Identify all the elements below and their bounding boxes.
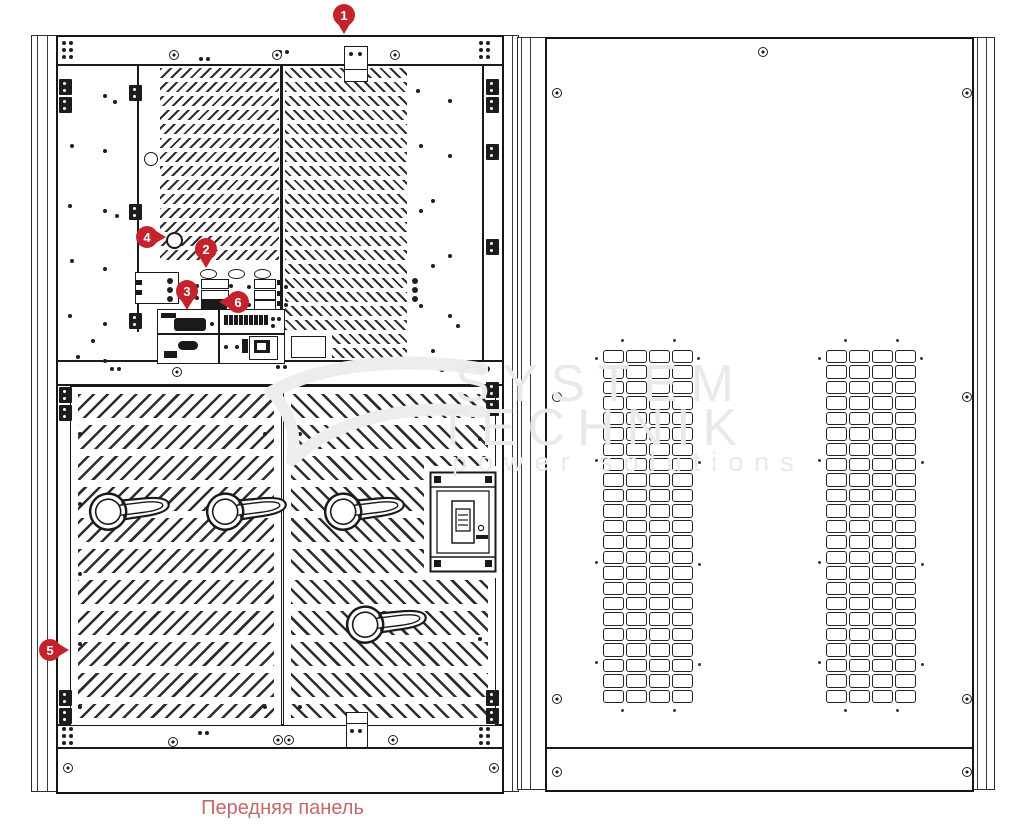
vent-slot (872, 443, 893, 456)
vent-slot (826, 350, 847, 363)
connector-pad (277, 301, 282, 306)
grille-mark (844, 709, 847, 712)
rivet-dot (479, 734, 483, 738)
vent-slot (872, 551, 893, 564)
rivet-dot (479, 741, 483, 745)
latch-line (345, 69, 367, 70)
connector-oval (200, 269, 217, 279)
vent-slot (872, 504, 893, 517)
upper-vent-grille-right (285, 68, 407, 360)
vent-slot (895, 690, 916, 703)
hinge-icon (59, 708, 72, 724)
rivet-dot (78, 642, 82, 646)
vent-slot (826, 690, 847, 703)
bolt-dot (412, 278, 418, 284)
rivet-dot (247, 285, 251, 289)
rivet-dot (91, 339, 95, 343)
hinge-icon (59, 79, 72, 95)
grille-mark (698, 663, 701, 666)
vent-slot (895, 504, 916, 517)
vent-slot (872, 582, 893, 595)
connector-block (242, 339, 248, 353)
breaker-cutout (424, 466, 502, 578)
vent-slot (849, 659, 870, 672)
vent-slot (872, 612, 893, 625)
rivet-dot (76, 355, 80, 359)
vent-slot (649, 628, 670, 641)
rivet-dot (69, 734, 73, 738)
vent-slot (826, 443, 847, 456)
lcd-screen (257, 343, 266, 350)
vent-slot (872, 350, 893, 363)
vent-slot (826, 674, 847, 687)
vent-slot (649, 690, 670, 703)
grille-mark (595, 661, 598, 664)
vent-slot (872, 427, 893, 440)
vent-slot (895, 643, 916, 656)
frame-line (58, 747, 502, 749)
hinge-icon (59, 405, 72, 421)
rivet-dot (62, 48, 66, 52)
vent-slot (672, 674, 693, 687)
vent-slot (649, 612, 670, 625)
vent-slot (895, 489, 916, 502)
vent-slot (849, 628, 870, 641)
vent-slot (895, 412, 916, 425)
vent-slot (872, 643, 893, 656)
rivet-dot (285, 50, 289, 54)
grille-mark (921, 461, 924, 464)
rivet-dot (103, 209, 107, 213)
rivet-dot (69, 741, 73, 745)
grille-mark (818, 357, 821, 360)
rail-line (986, 38, 987, 789)
rivet-dot (448, 99, 452, 103)
rivet-dot (68, 314, 72, 318)
rivet-dot (419, 144, 423, 148)
rivet-dot (103, 149, 107, 153)
vent-slot (603, 674, 624, 687)
rail-line (977, 38, 978, 789)
screw-icon (552, 694, 562, 704)
screw-icon (168, 737, 178, 747)
vent-slot (626, 566, 647, 579)
vent-slot (895, 396, 916, 409)
rivet-dot (448, 314, 452, 318)
rivet-cluster (479, 41, 490, 59)
vent-slot (872, 473, 893, 486)
rivet-dot (199, 57, 203, 61)
screw-icon (388, 735, 398, 745)
vent-slot (626, 659, 647, 672)
rivet-dot (206, 57, 210, 61)
vent-slot (603, 597, 624, 610)
connector-pad (277, 291, 282, 296)
vent-slot (603, 628, 624, 641)
vent-slot (626, 535, 647, 548)
bolt-dot (167, 278, 173, 284)
screw-icon (552, 767, 562, 777)
vent-slot (895, 427, 916, 440)
grille-mark (921, 563, 924, 566)
vent-slot (872, 365, 893, 378)
bolt-dot (167, 287, 173, 293)
vent-slot (649, 582, 670, 595)
vent-slot (849, 412, 870, 425)
vent-slot (849, 582, 870, 595)
vent-slot (672, 520, 693, 533)
latch-line (347, 723, 367, 724)
vent-slot (895, 612, 916, 625)
grille-mark (920, 357, 923, 360)
callout-marker-2: 2 (195, 238, 217, 260)
vent-slot (626, 520, 647, 533)
bolt-dot (412, 296, 418, 302)
vent-slot (672, 489, 693, 502)
rivet-dot (78, 705, 82, 709)
vent-slot (895, 443, 916, 456)
lower-door-left (70, 386, 282, 726)
rivet-dot (70, 144, 74, 148)
rivet-dot (486, 741, 490, 745)
screw-icon (758, 47, 768, 57)
connector-port (254, 279, 276, 289)
rivet-cluster (479, 727, 490, 745)
vent-slot (872, 690, 893, 703)
rivet-dot (115, 214, 119, 218)
vent-slot (672, 690, 693, 703)
rivet-dot (103, 267, 107, 271)
rivet-dot (205, 731, 209, 735)
diagram-caption: Передняя панель (170, 797, 395, 820)
vent-slot (603, 643, 624, 656)
rivet-dot (431, 264, 435, 268)
vent-slot (603, 612, 624, 625)
vent-slot (849, 674, 870, 687)
connector-port (254, 290, 276, 300)
grille-mark (896, 339, 899, 342)
vent-slot (826, 659, 847, 672)
grille-mark (844, 339, 847, 342)
callout-marker-1: 1 (333, 4, 355, 26)
grille-mark (921, 663, 924, 666)
vent-slot (895, 381, 916, 394)
vent-slot (895, 473, 916, 486)
hinge-icon (486, 97, 499, 113)
grille-mark (673, 709, 676, 712)
vent-slot (826, 396, 847, 409)
rivet-dot (103, 359, 107, 363)
latch-dot (349, 52, 353, 56)
vent-slot (649, 489, 670, 502)
rivet-dot (419, 209, 423, 213)
vent-slot (826, 520, 847, 533)
vent-slot (626, 504, 647, 517)
callout-marker-6: 6 (227, 291, 249, 313)
vent-slot (826, 535, 847, 548)
rivet-dot (284, 303, 288, 307)
vent-slot (649, 504, 670, 517)
vent-slot (649, 520, 670, 533)
rivet-dot (235, 345, 239, 349)
screw-icon (273, 735, 283, 745)
vent-slot (872, 535, 893, 548)
vent-slot (649, 659, 670, 672)
rivet-dot (448, 254, 452, 258)
door-vent-hatch (78, 394, 274, 718)
rivet-dot (62, 41, 66, 45)
screw-icon (169, 50, 179, 60)
vent-slot (895, 659, 916, 672)
rivet-dot (103, 94, 107, 98)
vent-slot (895, 458, 916, 471)
rivet-dot (478, 637, 482, 641)
vent-slot (872, 628, 893, 641)
callout-marker-5: 5 (39, 639, 61, 661)
rivet-dot (486, 41, 490, 45)
left-mounting-rail (31, 35, 58, 792)
door-latch-bottom (346, 712, 368, 748)
connector-port (201, 279, 229, 289)
latch-dot (358, 52, 362, 56)
vent-slot (849, 489, 870, 502)
hinge-icon (486, 690, 499, 706)
rail-line (37, 36, 38, 791)
vent-slot (872, 597, 893, 610)
rivet-dot (479, 727, 483, 731)
screw-icon (63, 763, 73, 773)
screw-icon (962, 694, 972, 704)
vent-slot (872, 520, 893, 533)
vent-slot (895, 350, 916, 363)
vent-slot (626, 551, 647, 564)
vent-slot (826, 582, 847, 595)
vent-slot (872, 396, 893, 409)
bolt-dot (412, 287, 418, 293)
grille-mark (621, 339, 624, 342)
hinge-icon (129, 313, 142, 329)
hinge-icon (486, 79, 499, 95)
grille-mark (818, 561, 821, 564)
vent-slot (649, 597, 670, 610)
rivet-dot (68, 204, 72, 208)
vent-slot (649, 535, 670, 548)
vent-slot (649, 551, 670, 564)
rivet-dot (263, 705, 267, 709)
vent-slot (649, 566, 670, 579)
vent-slot (603, 582, 624, 595)
vent-slot (626, 674, 647, 687)
hinge-icon (129, 204, 142, 220)
rivet-dot (479, 41, 483, 45)
vent-slot (626, 643, 647, 656)
vent-slot (626, 489, 647, 502)
vent-slot (826, 381, 847, 394)
screw-icon (272, 50, 282, 60)
vent-slot (626, 690, 647, 703)
rivet-dot (69, 41, 73, 45)
rivet-dot (78, 432, 82, 436)
rivet-dot (271, 317, 275, 321)
rivet-dot (69, 48, 73, 52)
vent-slot (672, 597, 693, 610)
vent-slot (849, 597, 870, 610)
hinge-icon (59, 387, 72, 403)
rivet-dot (69, 55, 73, 59)
vent-slot (849, 473, 870, 486)
vent-slot (603, 535, 624, 548)
vent-slot (603, 551, 624, 564)
vent-slot (672, 612, 693, 625)
vent-slot (872, 489, 893, 502)
vent-slot (849, 365, 870, 378)
rivet-dot (110, 367, 114, 371)
vent-slot (872, 381, 893, 394)
vent-slot (826, 489, 847, 502)
frame-line (482, 64, 484, 360)
screw-icon (552, 88, 562, 98)
grille-mark (818, 459, 821, 462)
vent-slot (849, 520, 870, 533)
oval-connector (178, 341, 198, 350)
vent-slot (626, 628, 647, 641)
rivet-dot (113, 100, 117, 104)
vent-slot (649, 674, 670, 687)
latch-dot (358, 729, 362, 733)
vent-slot (826, 473, 847, 486)
vent-slot (603, 489, 624, 502)
rivet-dot (78, 502, 82, 506)
cable-hole (144, 152, 158, 166)
watermark-line3: power solutions (452, 447, 805, 478)
vent-slot (849, 690, 870, 703)
vent-slot (672, 566, 693, 579)
vent-slot (603, 566, 624, 579)
vent-slot (872, 659, 893, 672)
vent-slot (872, 674, 893, 687)
vent-slot (849, 504, 870, 517)
vent-slot (826, 365, 847, 378)
vent-slot (826, 412, 847, 425)
rivet-dot (62, 734, 66, 738)
grille-mark (595, 561, 598, 564)
vent-slot (849, 551, 870, 564)
vent-slot (872, 458, 893, 471)
vent-slot (849, 381, 870, 394)
vent-slot (826, 597, 847, 610)
vent-slot (895, 535, 916, 548)
panel-divider (218, 310, 220, 363)
epo-button (166, 232, 183, 249)
hinge-icon (59, 97, 72, 113)
rivet-dot (117, 367, 121, 371)
vent-slot (826, 643, 847, 656)
vent-slot (672, 628, 693, 641)
rivet-cluster (62, 727, 73, 745)
vent-slot (672, 659, 693, 672)
rivet-dot (210, 322, 214, 326)
connector-oval (254, 269, 271, 279)
hinge-icon (486, 708, 499, 724)
vent-slot (672, 643, 693, 656)
grille-mark (698, 563, 701, 566)
rivet-cluster (62, 41, 73, 59)
hinge-icon (486, 144, 499, 160)
rivet-dot (198, 731, 202, 735)
dsub-connector (174, 318, 206, 331)
vent-slot (826, 612, 847, 625)
rivet-dot (419, 304, 423, 308)
vent-slot (849, 566, 870, 579)
vent-slot (895, 674, 916, 687)
vent-slot (672, 582, 693, 595)
latch-dot (350, 729, 354, 733)
vent-slot (826, 504, 847, 517)
vent-slot (895, 582, 916, 595)
screw-icon (489, 763, 499, 773)
vent-slot (603, 504, 624, 517)
vent-slot (826, 566, 847, 579)
connector-pad (277, 280, 282, 285)
rivet-dot (284, 285, 288, 289)
hinge-icon (486, 239, 499, 255)
rivet-dot (456, 324, 460, 328)
screw-icon (962, 88, 972, 98)
rail-line (47, 36, 48, 791)
vent-slot (826, 551, 847, 564)
rivet-dot (416, 89, 420, 93)
small-connector (164, 351, 177, 358)
rivet-dot (224, 345, 228, 349)
vent-slot (826, 427, 847, 440)
terminal-strip (224, 315, 269, 325)
vent-slot (872, 566, 893, 579)
grille-mark (673, 339, 676, 342)
connector-oval (228, 269, 245, 279)
screw-icon (390, 50, 400, 60)
rivet-dot (62, 727, 66, 731)
vent-slot (849, 458, 870, 471)
vent-slot (626, 582, 647, 595)
rivet-dot (271, 324, 275, 328)
rivet-dot (277, 317, 281, 321)
grille-mark (818, 661, 821, 664)
vent-slot (849, 643, 870, 656)
vent-slot (672, 535, 693, 548)
frame-line (547, 747, 972, 749)
vent-slot (603, 520, 624, 533)
screw-icon (284, 735, 294, 745)
rivet-dot (69, 727, 73, 731)
panel-label (161, 313, 176, 318)
grille-mark (621, 709, 624, 712)
screw-icon (962, 392, 972, 402)
vent-slot (672, 504, 693, 517)
vent-slot (895, 566, 916, 579)
rivet-dot (78, 572, 82, 576)
vent-slot (849, 535, 870, 548)
vent-slot (849, 612, 870, 625)
door-latch-top (344, 46, 368, 82)
rivet-dot (486, 48, 490, 52)
rivet-dot (62, 55, 66, 59)
rivet-dot (229, 284, 233, 288)
rivet-dot (448, 154, 452, 158)
junction-nub (136, 280, 142, 285)
vent-slot (872, 412, 893, 425)
vent-slot (849, 350, 870, 363)
screw-icon (962, 767, 972, 777)
